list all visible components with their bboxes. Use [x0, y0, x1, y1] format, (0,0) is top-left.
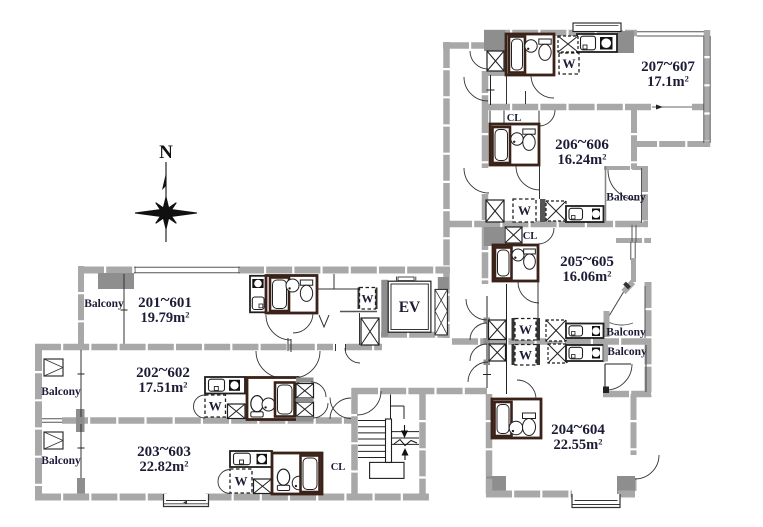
svg-text:W: W	[518, 203, 531, 218]
svg-text:W: W	[519, 322, 532, 337]
svg-text:19.79m2: 19.79m2	[141, 310, 190, 327]
svg-text:CL: CL	[507, 113, 522, 124]
svg-text:17.1m2: 17.1m2	[647, 74, 689, 91]
svg-text:17.51m2: 17.51m2	[139, 380, 188, 397]
svg-text:W: W	[235, 474, 248, 489]
svg-text:22.82m2: 22.82m2	[140, 459, 189, 476]
svg-text:16.24m2: 16.24m2	[558, 152, 607, 169]
svg-text:Balcony: Balcony	[84, 298, 124, 310]
svg-text:Balcony: Balcony	[41, 455, 81, 467]
svg-text:CL: CL	[331, 462, 346, 473]
svg-text:W: W	[563, 56, 576, 71]
svg-text:Balcony: Balcony	[607, 346, 647, 358]
svg-text:22.55m2: 22.55m2	[554, 437, 603, 454]
svg-text:CL: CL	[523, 231, 538, 242]
svg-text:Balcony: Balcony	[606, 327, 646, 339]
svg-text:W: W	[519, 347, 532, 362]
svg-text:EV: EV	[399, 299, 421, 316]
svg-text:W: W	[209, 399, 222, 414]
svg-text:16.06m2: 16.06m2	[563, 269, 612, 286]
svg-text:W: W	[362, 292, 374, 306]
svg-text:Balcony: Balcony	[41, 386, 81, 398]
svg-text:N: N	[159, 142, 173, 163]
svg-text:Balcony: Balcony	[606, 192, 646, 204]
